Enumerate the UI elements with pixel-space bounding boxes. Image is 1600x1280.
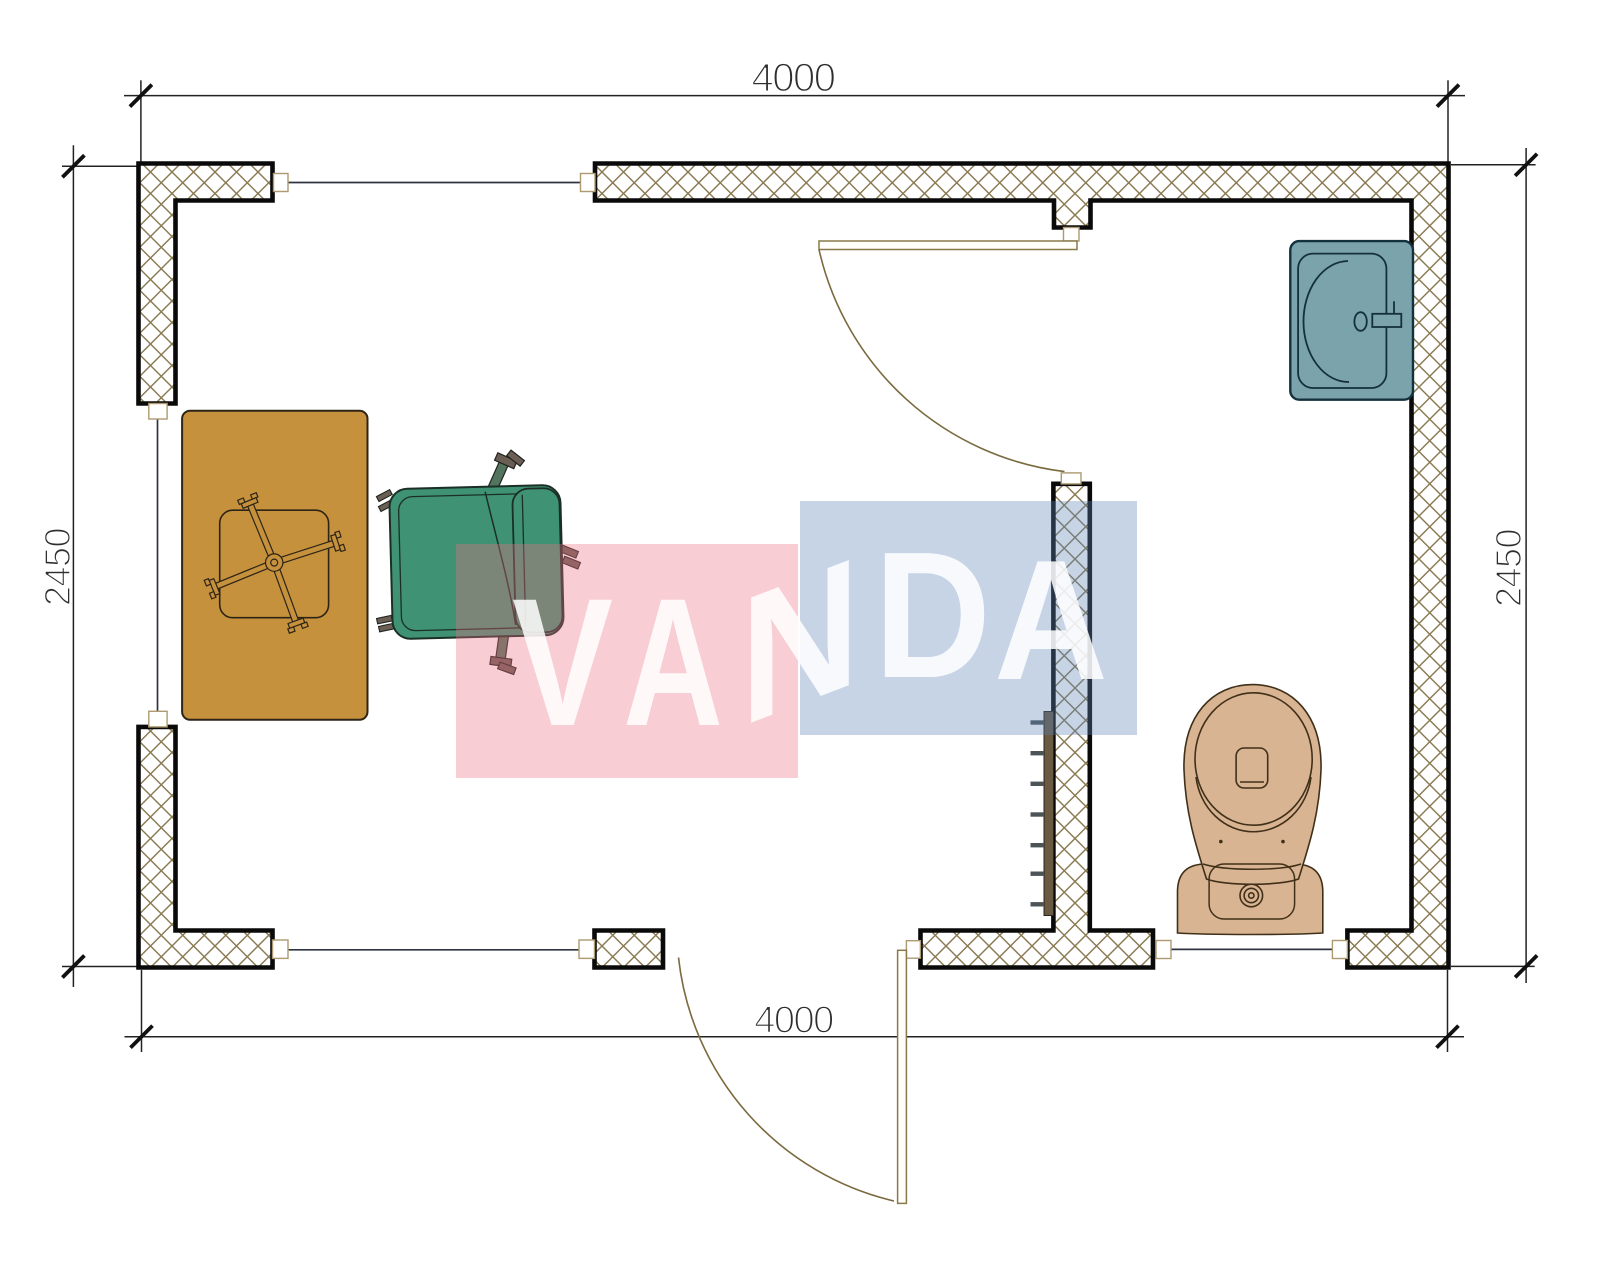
svg-text:D: D: [874, 515, 991, 716]
svg-text:2450: 2450: [37, 528, 78, 606]
svg-text:V: V: [512, 560, 613, 764]
svg-text:4000: 4000: [754, 1000, 833, 1042]
svg-text:4000: 4000: [752, 56, 835, 100]
svg-text:A: A: [623, 560, 723, 764]
svg-text:A: A: [994, 525, 1108, 716]
svg-text:2450: 2450: [1488, 529, 1529, 607]
